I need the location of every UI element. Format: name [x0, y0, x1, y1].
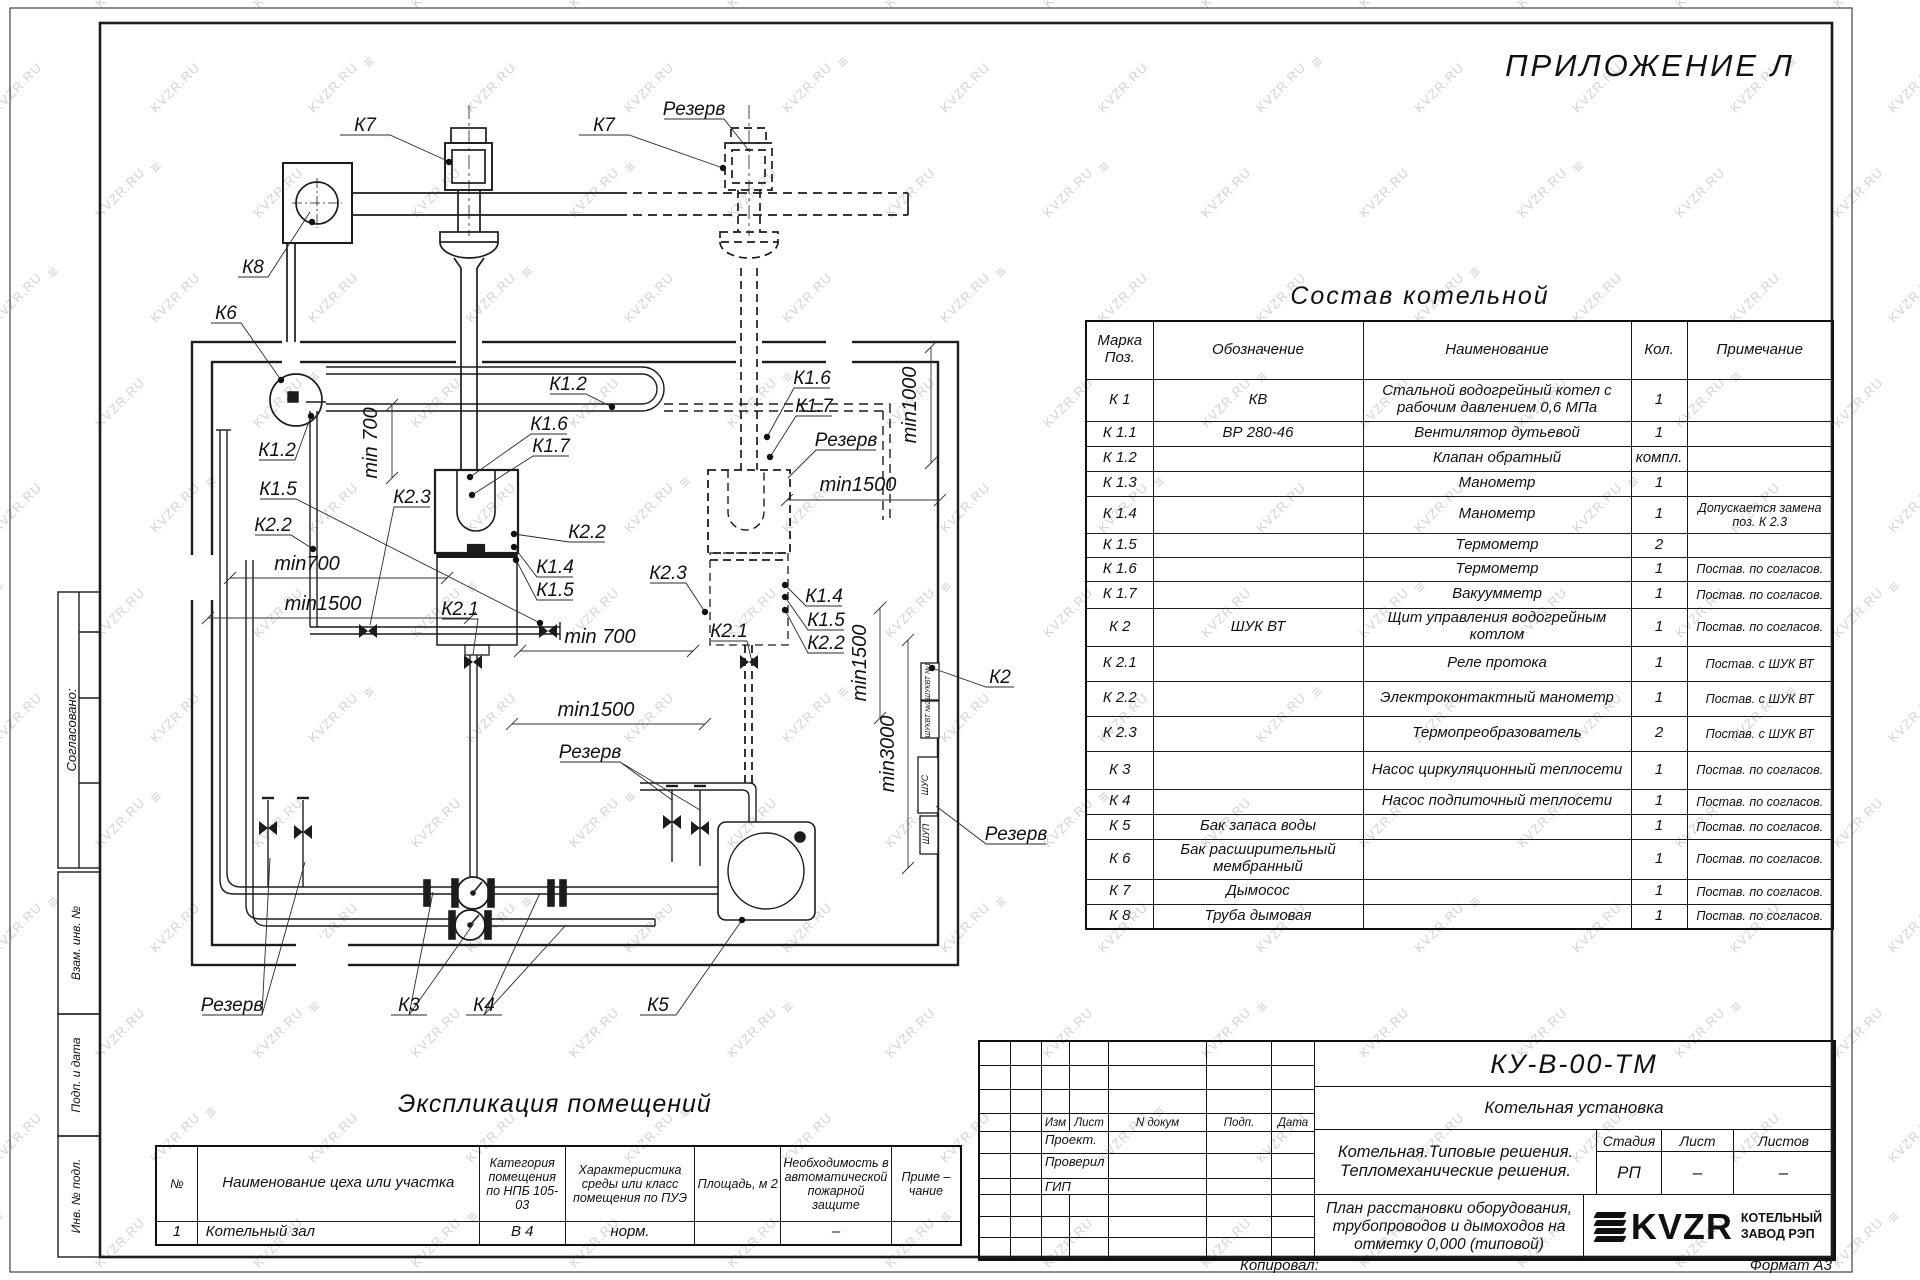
sostav-header-cell: Обозначение	[1153, 321, 1363, 379]
tank-and-pumps	[424, 822, 815, 940]
plan-label: К2.3	[649, 563, 687, 584]
ekspl-header-cell: Наименование цеха или участка	[197, 1146, 479, 1221]
plan-label: min1500	[558, 699, 635, 721]
sostav-cell: Термопреобразователь	[1363, 716, 1631, 751]
sostav-cell	[1687, 379, 1833, 421]
sostav-cell	[1153, 557, 1363, 581]
plan-label: min1500	[849, 625, 871, 702]
titleblock-cell	[1207, 1238, 1272, 1259]
leader-dots	[278, 159, 935, 923]
plan-label: min 700	[564, 626, 635, 648]
sostav-header-cell: Наименование	[1363, 321, 1631, 379]
ekspl-cell	[891, 1221, 961, 1245]
titleblock-cell	[1011, 1090, 1042, 1114]
sostav-cell: 1	[1631, 646, 1687, 681]
plan-label: К2.3	[393, 487, 431, 508]
plan-label: min 700	[360, 407, 382, 478]
sostav-cell	[1363, 814, 1631, 839]
titleblock-cell	[980, 1042, 1011, 1066]
stage-value: –	[1734, 1152, 1834, 1195]
drawing-sheet: KVZR.RU≡KVZR.RUKVZR.RUKVZR.RU≡KVZR.RUKVZ…	[0, 0, 1920, 1280]
titleblock-cell	[1011, 1114, 1042, 1132]
sostav-cell	[1153, 751, 1363, 789]
plan-label: К1.4	[805, 586, 843, 607]
sostav-cell: К 6	[1086, 839, 1153, 879]
project-name: Котельная.Типовые решения.Тепломеханичес…	[1315, 1130, 1597, 1195]
plan-label: К2	[989, 667, 1011, 688]
sostav-cell: Стальной водогрейный котел с рабочим дав…	[1363, 379, 1631, 421]
titleblock-cell	[1109, 1066, 1207, 1090]
titleblock-cell	[1011, 1132, 1042, 1154]
plan-label: К2.1	[710, 621, 748, 642]
sostav-cell: Вентилятор дутьевой	[1363, 421, 1631, 446]
sostav-cell: К 4	[1086, 789, 1153, 814]
plan-label: К7	[593, 115, 616, 136]
titleblock-cell	[980, 1090, 1011, 1114]
sostav-cell: Постав. по согласов.	[1687, 904, 1833, 929]
plan-label: min3000	[877, 716, 899, 793]
plan-label: К3	[398, 995, 420, 1016]
rev-col-header: Дата	[1272, 1114, 1315, 1132]
sostav-cell	[1153, 789, 1363, 814]
titleblock-cell	[1272, 1066, 1315, 1090]
sostav-cell: К 1.2	[1086, 446, 1153, 471]
plan-label: К6	[215, 303, 237, 324]
sostav-cell: Постав. по согласов.	[1687, 789, 1833, 814]
titleblock-cell	[980, 1114, 1011, 1132]
rev-col-header: Изм	[1042, 1114, 1070, 1132]
sostav-cell: 1	[1631, 379, 1687, 421]
sostav-cell: 1	[1631, 904, 1687, 929]
titleblock-cell	[1070, 1217, 1109, 1238]
ekspl-table: №Наименование цеха или участкаКатегория …	[155, 1145, 962, 1244]
sostav-cell: Постав. по согласов.	[1687, 581, 1833, 608]
sostav-cell	[1687, 533, 1833, 557]
sostav-cell: К 1.4	[1086, 496, 1153, 533]
plan-label: К1.4	[536, 557, 574, 578]
sostav-cell: Насос подпиточный теплосети	[1363, 789, 1631, 814]
sostav-cell: 1	[1631, 814, 1687, 839]
sostav-cell: 1	[1631, 471, 1687, 496]
titleblock-cell	[1207, 1179, 1272, 1195]
titleblock-cell	[1042, 1238, 1070, 1259]
sostav-cell: Бак расширительный мембранный	[1153, 839, 1363, 879]
ekspl-cell: В 4	[479, 1221, 565, 1245]
titleblock-cell	[1011, 1179, 1042, 1195]
sostav-cell: Постав. по согласов.	[1687, 557, 1833, 581]
sostav-cell: К 1	[1086, 379, 1153, 421]
sostav-cell	[1153, 471, 1363, 496]
sostav-cell: 1	[1631, 751, 1687, 789]
plan-label: К1.2	[258, 440, 296, 461]
titleblock-cell	[980, 1179, 1011, 1195]
sostav-cell	[1153, 716, 1363, 751]
titleblock-cell	[1070, 1090, 1109, 1114]
titleblock-cell	[1011, 1154, 1042, 1179]
titleblock-cell	[1272, 1195, 1315, 1217]
stage-header: Листов	[1734, 1130, 1834, 1152]
ekspl-cell: –	[781, 1221, 892, 1245]
sostav-cell: Клапан обратный	[1363, 446, 1631, 471]
sostav-cell: К 3	[1086, 751, 1153, 789]
ekspl-cell	[695, 1221, 781, 1245]
sostav-cell: Допускается замена поз. К 2.3	[1687, 496, 1833, 533]
titleblock-cell	[980, 1195, 1011, 1217]
ekspl-table-grid: №Наименование цеха или участкаКатегория …	[155, 1145, 962, 1246]
ekspl-header-cell: Необходимость в автоматической пожарной …	[781, 1146, 892, 1221]
role-label: Проект.	[1042, 1132, 1109, 1154]
format-label: Формат А3	[1700, 1257, 1832, 1274]
titleblock-cell	[1042, 1042, 1070, 1066]
titleblock-cell	[1070, 1042, 1109, 1066]
role-label: ГИП	[1042, 1179, 1109, 1195]
titleblock-cell	[1011, 1238, 1042, 1259]
ekspl-header-cell: Характеристика среды или класс помещения…	[565, 1146, 695, 1221]
plan-label: К2.2	[254, 515, 292, 536]
sostav-cell: Термометр	[1363, 533, 1631, 557]
margin-stamp-label: Подп. и дата	[69, 1037, 83, 1112]
sostav-cell: Дымосос	[1153, 879, 1363, 904]
plan-label: К1.6	[530, 414, 568, 435]
plan-label: К1.2	[549, 374, 587, 395]
sostav-cell	[1363, 904, 1631, 929]
plan-label: К1.5	[536, 580, 574, 601]
sostav-title: Состав котельной	[1270, 282, 1570, 311]
ekspl-cell: норм.	[565, 1221, 695, 1245]
margin-stamp-label: Взам. инв. №	[69, 906, 83, 980]
rev-col-header: N докум	[1109, 1114, 1207, 1132]
titleblock-cell	[1109, 1195, 1207, 1217]
sostav-cell: ШУК ВТ	[1153, 608, 1363, 646]
sostav-cell: К 1.3	[1086, 471, 1153, 496]
sostav-cell	[1687, 446, 1833, 471]
plan-label: К2.2	[568, 522, 606, 543]
sostav-cell: 1	[1631, 839, 1687, 879]
titleblock-cell	[1109, 1154, 1207, 1179]
margin-stamp-label: Согласовано:	[64, 688, 79, 771]
company-logo: KVZRКОТЕЛЬНЫЙЗАВОД РЭП	[1584, 1195, 1834, 1259]
appendix-title: ПРИЛОЖЕНИЕ Л	[1460, 48, 1840, 84]
titleblock-cell	[1272, 1090, 1315, 1114]
sostav-header-cell: Кол.	[1631, 321, 1687, 379]
titleblock-cell	[1272, 1132, 1315, 1154]
sostav-cell: Вакуумметр	[1363, 581, 1631, 608]
titleblock-cell	[1042, 1090, 1070, 1114]
sostav-cell: 1	[1631, 879, 1687, 904]
titleblock-cell	[1272, 1217, 1315, 1238]
sostav-cell: Бак запаса воды	[1153, 814, 1363, 839]
titleblock-cell	[1109, 1042, 1207, 1066]
drawing-title: План расстановки оборудования,трубопрово…	[1315, 1195, 1584, 1259]
kvzr-logo-icon	[1595, 1210, 1625, 1244]
titleblock-cell	[1042, 1066, 1070, 1090]
titleblock-cell	[1207, 1132, 1272, 1154]
kvzr-logo-text: KVZR	[1631, 1206, 1733, 1248]
sostav-cell: К 2.3	[1086, 716, 1153, 751]
sostav-cell: 1	[1631, 681, 1687, 716]
plan-label: min1500	[820, 474, 897, 496]
titleblock-cell	[980, 1066, 1011, 1090]
sostav-cell: 1	[1631, 608, 1687, 646]
margin-stamp-label: Инв. № подл.	[69, 1159, 83, 1233]
sostav-cell	[1153, 533, 1363, 557]
plan-label: Резерв	[815, 430, 878, 451]
sostav-cell: Термометр	[1363, 557, 1631, 581]
sostav-cell: Постав. по согласов.	[1687, 879, 1833, 904]
titleblock-cell	[1011, 1217, 1042, 1238]
stage-header: Лист	[1662, 1130, 1734, 1152]
object-name: Котельная установка	[1315, 1087, 1834, 1130]
titleblock-cell	[1207, 1042, 1272, 1066]
plan-label: К1.5	[259, 479, 297, 500]
plan-label: К2.1	[441, 599, 479, 620]
ekspl-cell: Котельный зал	[197, 1221, 479, 1245]
titleblock-cell	[1070, 1195, 1109, 1217]
titleblock-cell	[1109, 1238, 1207, 1259]
titleblock-cell	[1109, 1179, 1207, 1195]
sostav-cell: К 1.6	[1086, 557, 1153, 581]
sostav-cell: 1	[1631, 496, 1687, 533]
sostav-cell: 1	[1631, 421, 1687, 446]
plan-label: ШУКВТ №1	[925, 662, 932, 699]
plan-label: Резерв	[663, 99, 726, 120]
plan-label: ШУС	[920, 774, 930, 795]
sostav-cell	[1153, 581, 1363, 608]
sostav-cell: 2	[1631, 533, 1687, 557]
rev-col-header: Лист	[1070, 1114, 1109, 1132]
stage-value: –	[1662, 1152, 1734, 1195]
sostav-cell	[1153, 446, 1363, 471]
sostav-cell: К 1.1	[1086, 421, 1153, 446]
sostav-cell: Постав. по согласов.	[1687, 608, 1833, 646]
titleblock-cell	[1272, 1154, 1315, 1179]
sostav-cell: Электроконтактный манометр	[1363, 681, 1631, 716]
sostav-cell: 1	[1631, 581, 1687, 608]
titleblock-cell	[1070, 1238, 1109, 1259]
valves	[259, 624, 758, 839]
ekspl-cell: 1	[156, 1221, 197, 1245]
titleblock-cell	[1011, 1066, 1042, 1090]
sostav-cell: Манометр	[1363, 471, 1631, 496]
sostav-header-cell: Примечание	[1687, 321, 1833, 379]
sostav-cell: К 2	[1086, 608, 1153, 646]
titleblock-cell	[1109, 1090, 1207, 1114]
sostav-cell	[1363, 839, 1631, 879]
titleblock-cell	[980, 1238, 1011, 1259]
sostav-cell: Постав. с ШУК ВТ	[1687, 681, 1833, 716]
plan-label: Резерв	[985, 824, 1048, 845]
sostav-cell: К 8	[1086, 904, 1153, 929]
plan-label: min1000	[899, 367, 921, 444]
plan-label: К1.7	[532, 436, 571, 457]
sostav-table-grid: Марка Поз.ОбозначениеНаименованиеКол.При…	[1085, 320, 1834, 930]
sostav-cell: Насос циркуляционный теплосети	[1363, 751, 1631, 789]
plan-label: ШУКВТ №2	[925, 700, 932, 737]
titleblock-cell	[1042, 1195, 1070, 1217]
plan-label: К5	[647, 995, 669, 1016]
sostav-cell: К 1.5	[1086, 533, 1153, 557]
sostav-cell: Постав. с ШУК ВТ	[1687, 716, 1833, 751]
sostav-cell: Щит управления водогрейным котлом	[1363, 608, 1631, 646]
titleblock-cell	[1070, 1066, 1109, 1090]
sostav-cell: Постав. с ШУК ВТ	[1687, 646, 1833, 681]
stage-header: Стадия	[1597, 1130, 1662, 1152]
titleblock-cell	[1272, 1238, 1315, 1259]
doc-code: КУ-В-00-ТМ	[1315, 1042, 1834, 1087]
titleblock-cell	[1109, 1217, 1207, 1238]
sostav-cell: К 7	[1086, 879, 1153, 904]
sostav-cell	[1687, 421, 1833, 446]
plan-label: Резерв	[559, 742, 622, 763]
titleblock-cell	[1042, 1217, 1070, 1238]
margin-stamp-labels: Согласовано:Взам. инв. №Подп. и датаИнв.…	[64, 688, 83, 1233]
ekspl-header-cell: Приме – чание	[891, 1146, 961, 1221]
titleblock-cell	[1207, 1090, 1272, 1114]
titleblock-cell	[1109, 1132, 1207, 1154]
sostav-cell	[1153, 646, 1363, 681]
sostav-cell	[1153, 496, 1363, 533]
sostav-cell: К 2.2	[1086, 681, 1153, 716]
titleblock-cell	[980, 1132, 1011, 1154]
plan-label: К1.6	[793, 368, 831, 389]
sostav-cell: Реле протока	[1363, 646, 1631, 681]
plan-label: К1.5	[807, 610, 845, 631]
sostav-cell: ВР 280-46	[1153, 421, 1363, 446]
rev-col-header: Подп.	[1207, 1114, 1272, 1132]
plan-label: К7	[354, 115, 377, 136]
plan-label: К4	[473, 995, 495, 1016]
plan-label: К1.7	[795, 396, 834, 417]
titleblock-cell	[1272, 1179, 1315, 1195]
sostav-cell: Манометр	[1363, 496, 1631, 533]
sostav-cell: К 1.7	[1086, 581, 1153, 608]
titleblock-cell	[980, 1217, 1011, 1238]
title-block: ИзмЛистN докумПодп.ДатаПроект.ПроверилГИ…	[978, 1040, 1836, 1261]
stage-value: РП	[1597, 1152, 1662, 1195]
titleblock-cell	[1207, 1195, 1272, 1217]
ekspl-header-cell: Категория помещения по НПБ 105-03	[479, 1146, 565, 1221]
sostav-cell: Постав. по согласов.	[1687, 814, 1833, 839]
sostav-cell: Постав. по согласов.	[1687, 839, 1833, 879]
ekspl-header-cell: Площадь, м 2	[695, 1146, 781, 1221]
sostav-cell: КВ	[1153, 379, 1363, 421]
plan-label: min700	[274, 553, 340, 575]
sostav-cell	[1687, 471, 1833, 496]
plan-label: ШУП	[921, 823, 931, 844]
sostav-cell	[1153, 681, 1363, 716]
ekspl-title: Экспликация помещений	[398, 1090, 698, 1119]
plan-label: Резерв	[201, 995, 264, 1016]
ekspl-header-cell: №	[156, 1146, 197, 1221]
titleblock-cell	[1011, 1195, 1042, 1217]
sostav-cell: компл.	[1631, 446, 1687, 471]
sostav-cell: Постав. по согласов.	[1687, 751, 1833, 789]
plan-labels: К7К7РезервК8К6К1.2К1.6К1.7К1.2К1.5К2.2К2…	[201, 99, 1048, 1016]
titleblock-cell	[1207, 1154, 1272, 1179]
sostav-cell: К 5	[1086, 814, 1153, 839]
sostav-cell	[1363, 879, 1631, 904]
titleblock-cell	[1207, 1217, 1272, 1238]
sostav-cell: 2	[1631, 716, 1687, 751]
sostav-cell: 1	[1631, 789, 1687, 814]
titleblock-cell	[1011, 1042, 1042, 1066]
role-label: Проверил	[1042, 1154, 1109, 1179]
sostav-cell: 1	[1631, 557, 1687, 581]
sostav-cell: К 2.1	[1086, 646, 1153, 681]
titleblock-cell	[980, 1154, 1011, 1179]
sostav-header-cell: Марка Поз.	[1086, 321, 1153, 379]
sostav-cell: Труба дымовая	[1153, 904, 1363, 929]
titleblock-cell	[1207, 1066, 1272, 1090]
company-name: КОТЕЛЬНЫЙЗАВОД РЭП	[1741, 1211, 1822, 1242]
plan-label: К2.2	[807, 633, 845, 654]
sostav-table: Марка Поз.ОбозначениеНаименованиеКол.При…	[1085, 320, 1832, 928]
titleblock-cell	[1272, 1042, 1315, 1066]
plan-label: К8	[242, 257, 264, 278]
copied-label: Копировал:	[1240, 1257, 1319, 1274]
plan-label: min1500	[285, 593, 362, 615]
